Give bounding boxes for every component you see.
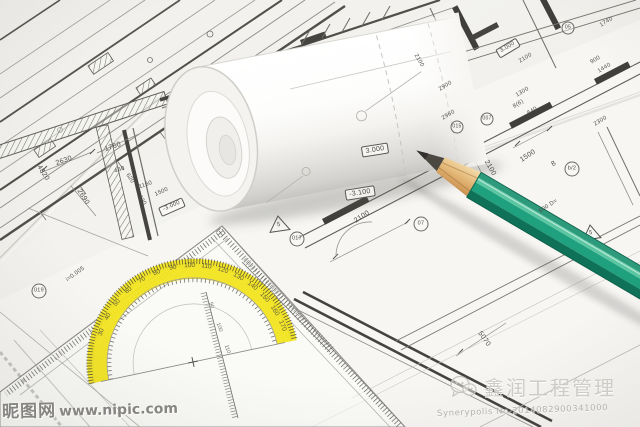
dim-label: 2630 (55, 155, 73, 167)
plan-annotations: 3.000 -3.100 2100 -3.000 1500 2100 1500 … (0, 0, 640, 427)
dim-label: 1300 (515, 87, 530, 99)
note-label: 500 D= (539, 199, 559, 215)
dim-label: 2100 (483, 159, 497, 177)
dim-label: 640 (527, 107, 539, 117)
axis-bubble: 019 (32, 284, 47, 299)
section-mark-label: 5 (589, 231, 593, 237)
dim-label: 1500 (519, 148, 537, 163)
dim-label: 1160 (139, 181, 154, 191)
dim-label: 4820 (36, 164, 51, 182)
dim-label: 2300 (593, 116, 608, 128)
axis-bubble: 05 (562, 22, 575, 35)
slope-label: i=0.005 (66, 266, 87, 283)
dim-label: 2900 (438, 81, 453, 93)
wechat-icon (450, 375, 477, 398)
dim-label: 460 (114, 167, 126, 176)
dim-label: 1760 (104, 141, 122, 153)
watermark-site-url: www.nipic.com (59, 401, 178, 420)
elevation-label: -3.000 (158, 197, 186, 217)
axis-bubble: b/2 (565, 162, 580, 177)
dim-label: 2690 (76, 188, 91, 206)
dim-label: 830 (136, 195, 147, 207)
axis-bubble: 07 (414, 217, 429, 232)
dim-label: 8(6) (513, 100, 526, 111)
dim-label: 1740 (599, 17, 614, 29)
axis-bubble: 015 (451, 121, 464, 134)
watermark-site-name: 昵图网 (2, 396, 57, 422)
dim-label: 1440 (597, 63, 612, 75)
axis-bubble: 007 (481, 113, 494, 126)
elevation-label: 3.000 (361, 142, 389, 157)
dim-label: 5070 (476, 330, 491, 348)
dim-label: 2100 (412, 53, 424, 68)
section-mark-label: 5 (277, 223, 281, 229)
dim-label: 900 (590, 56, 602, 66)
dim-label: 8 (550, 160, 557, 168)
blueprint-photo: 30 40 50 60 70 80 90 100 110 120 130 140… (0, 0, 640, 427)
watermark-nipic: 昵图网 www.nipic.com (2, 393, 179, 423)
dim-label: 1500 (154, 187, 169, 198)
watermark-company-name: 鑫润工程管理 (484, 372, 616, 401)
dim-label: 2100 (518, 53, 533, 65)
dim-label: 2100 (353, 209, 371, 224)
elevation-label: -3.100 (344, 185, 375, 201)
elevation-label: 3.000 (495, 38, 521, 59)
dim-label: 620 (124, 173, 135, 185)
watermark-company: 鑫润工程管理 (450, 372, 616, 401)
axis-bubble: 017 (290, 232, 305, 247)
